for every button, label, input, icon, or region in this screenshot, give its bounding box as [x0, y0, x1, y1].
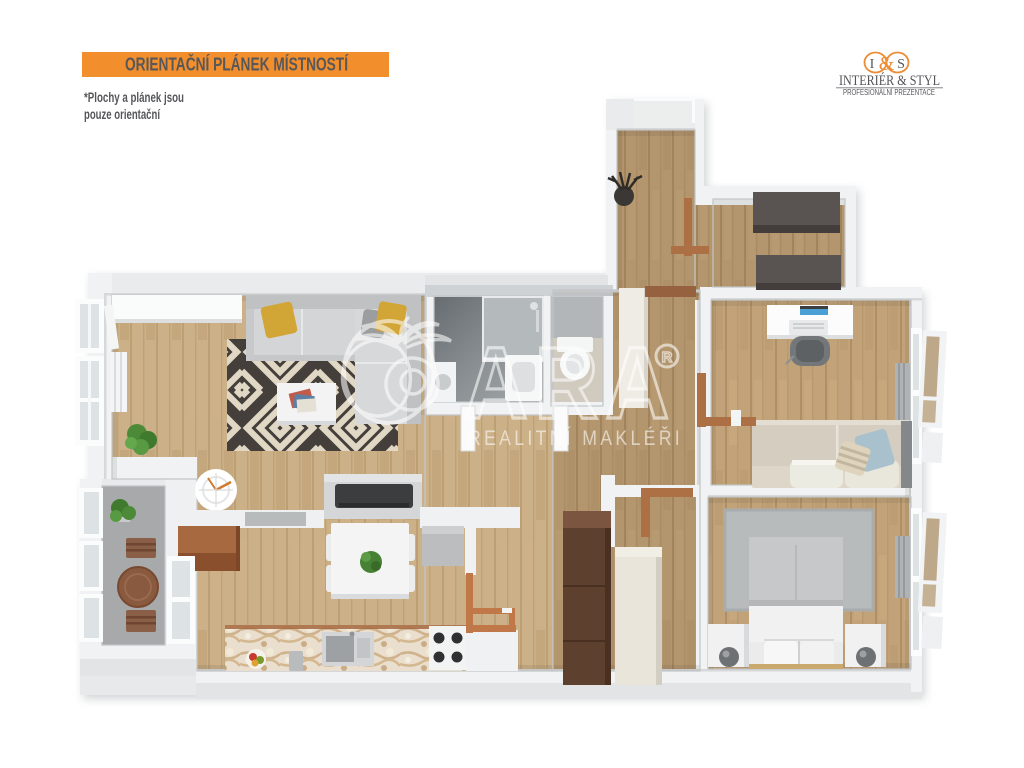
svg-text:*Plochy a plánek jsou: *Plochy a plánek jsou: [84, 90, 184, 105]
svg-text:R: R: [662, 349, 673, 366]
svg-text:PROFESIONÁLNÍ PREZENTACE: PROFESIONÁLNÍ PREZENTACE: [843, 88, 935, 97]
svg-text:pouze orientační: pouze orientační: [84, 107, 161, 122]
svg-text:&: &: [879, 53, 895, 75]
svg-text:INTERIÉR & STYL: INTERIÉR & STYL: [839, 72, 940, 89]
svg-text:ARA: ARA: [464, 326, 676, 440]
svg-text:REALITNÍ MAKLÉŘI: REALITNÍ MAKLÉŘI: [468, 425, 683, 450]
svg-text:I: I: [870, 57, 875, 72]
svg-text:ORIENTAČNÍ PLÁNEK MÍSTNOSTÍ: ORIENTAČNÍ PLÁNEK MÍSTNOSTÍ: [125, 54, 349, 75]
svg-text:S: S: [897, 57, 905, 72]
